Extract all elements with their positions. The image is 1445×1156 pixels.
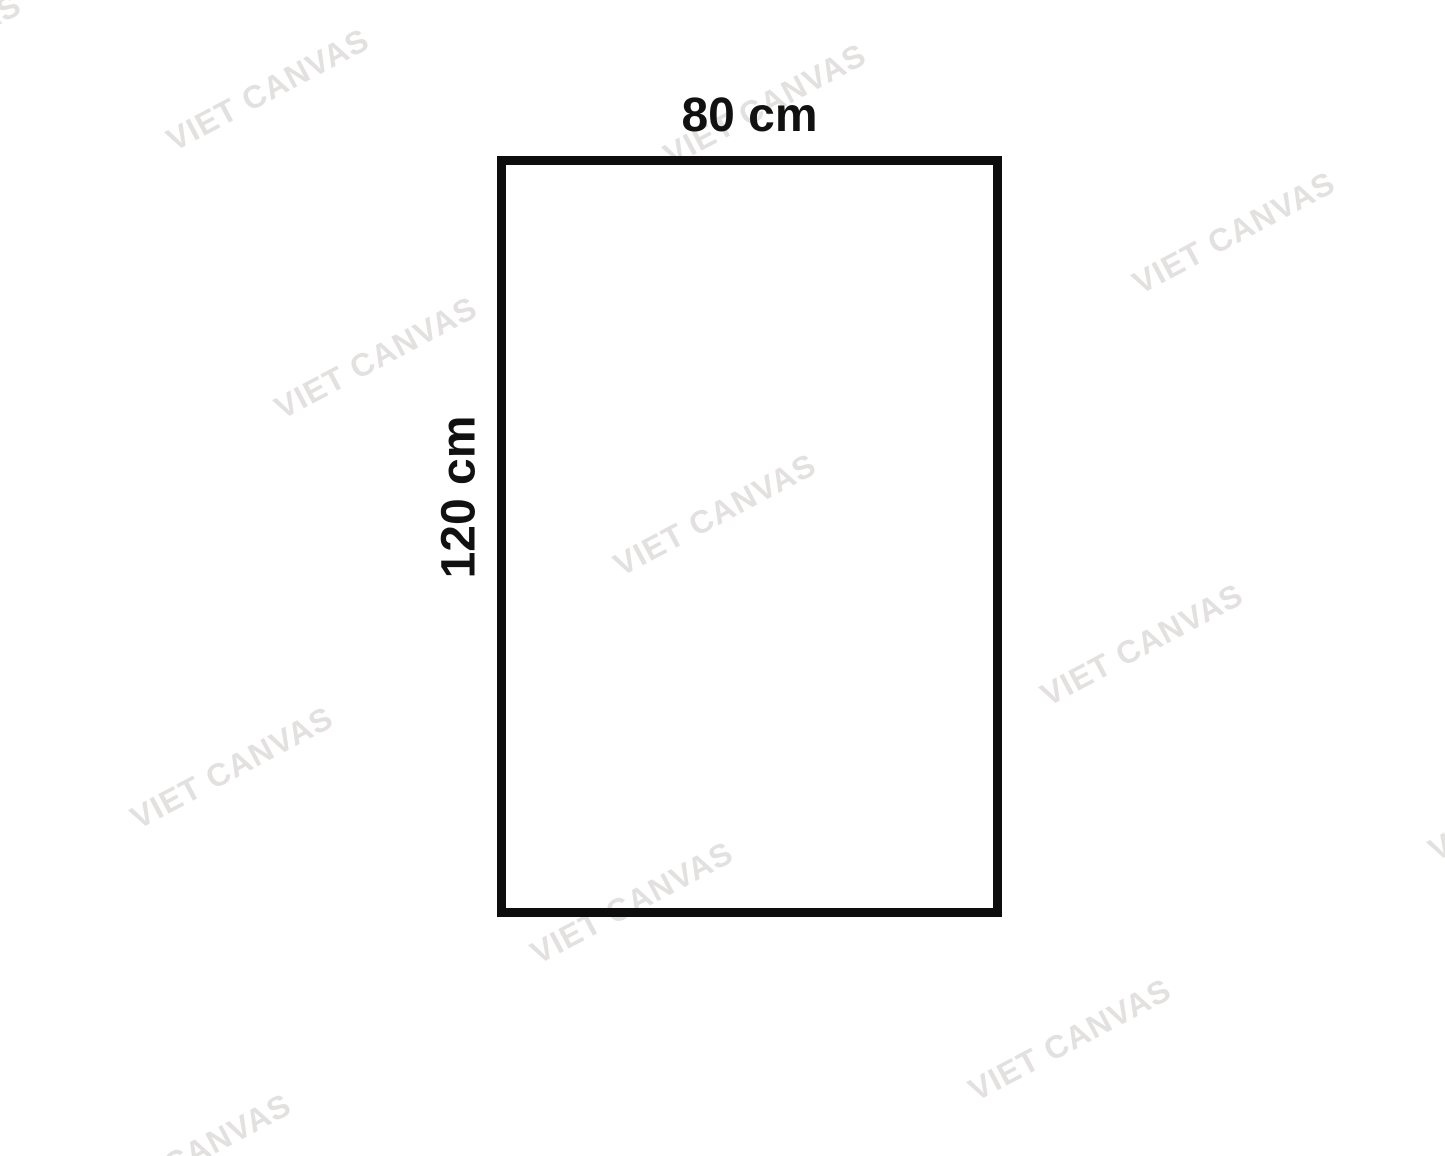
watermark-text: VIET CANVAS bbox=[161, 21, 376, 159]
width-label: 80 cm bbox=[497, 90, 1002, 143]
height-label: 120 cm bbox=[434, 416, 487, 579]
watermark-text: VIET CANVAS bbox=[125, 699, 340, 837]
watermark-text: VIET CANVAS bbox=[1423, 731, 1445, 869]
watermark-text: VIET CANVAS bbox=[963, 971, 1178, 1109]
canvas-size-rectangle bbox=[497, 156, 1002, 917]
diagram-canvas: VIET CANVASVIET CANVASVIET CANVASVIET CA… bbox=[0, 0, 1445, 1156]
watermark-text: VIET CANVAS bbox=[0, 0, 27, 124]
watermark-text: VIET CANVAS bbox=[1127, 164, 1342, 302]
watermark-text: VIET CANVAS bbox=[269, 289, 484, 427]
watermark-text: VIET CANVAS bbox=[83, 1086, 298, 1156]
watermark-text: VIET CANVAS bbox=[1035, 576, 1250, 714]
